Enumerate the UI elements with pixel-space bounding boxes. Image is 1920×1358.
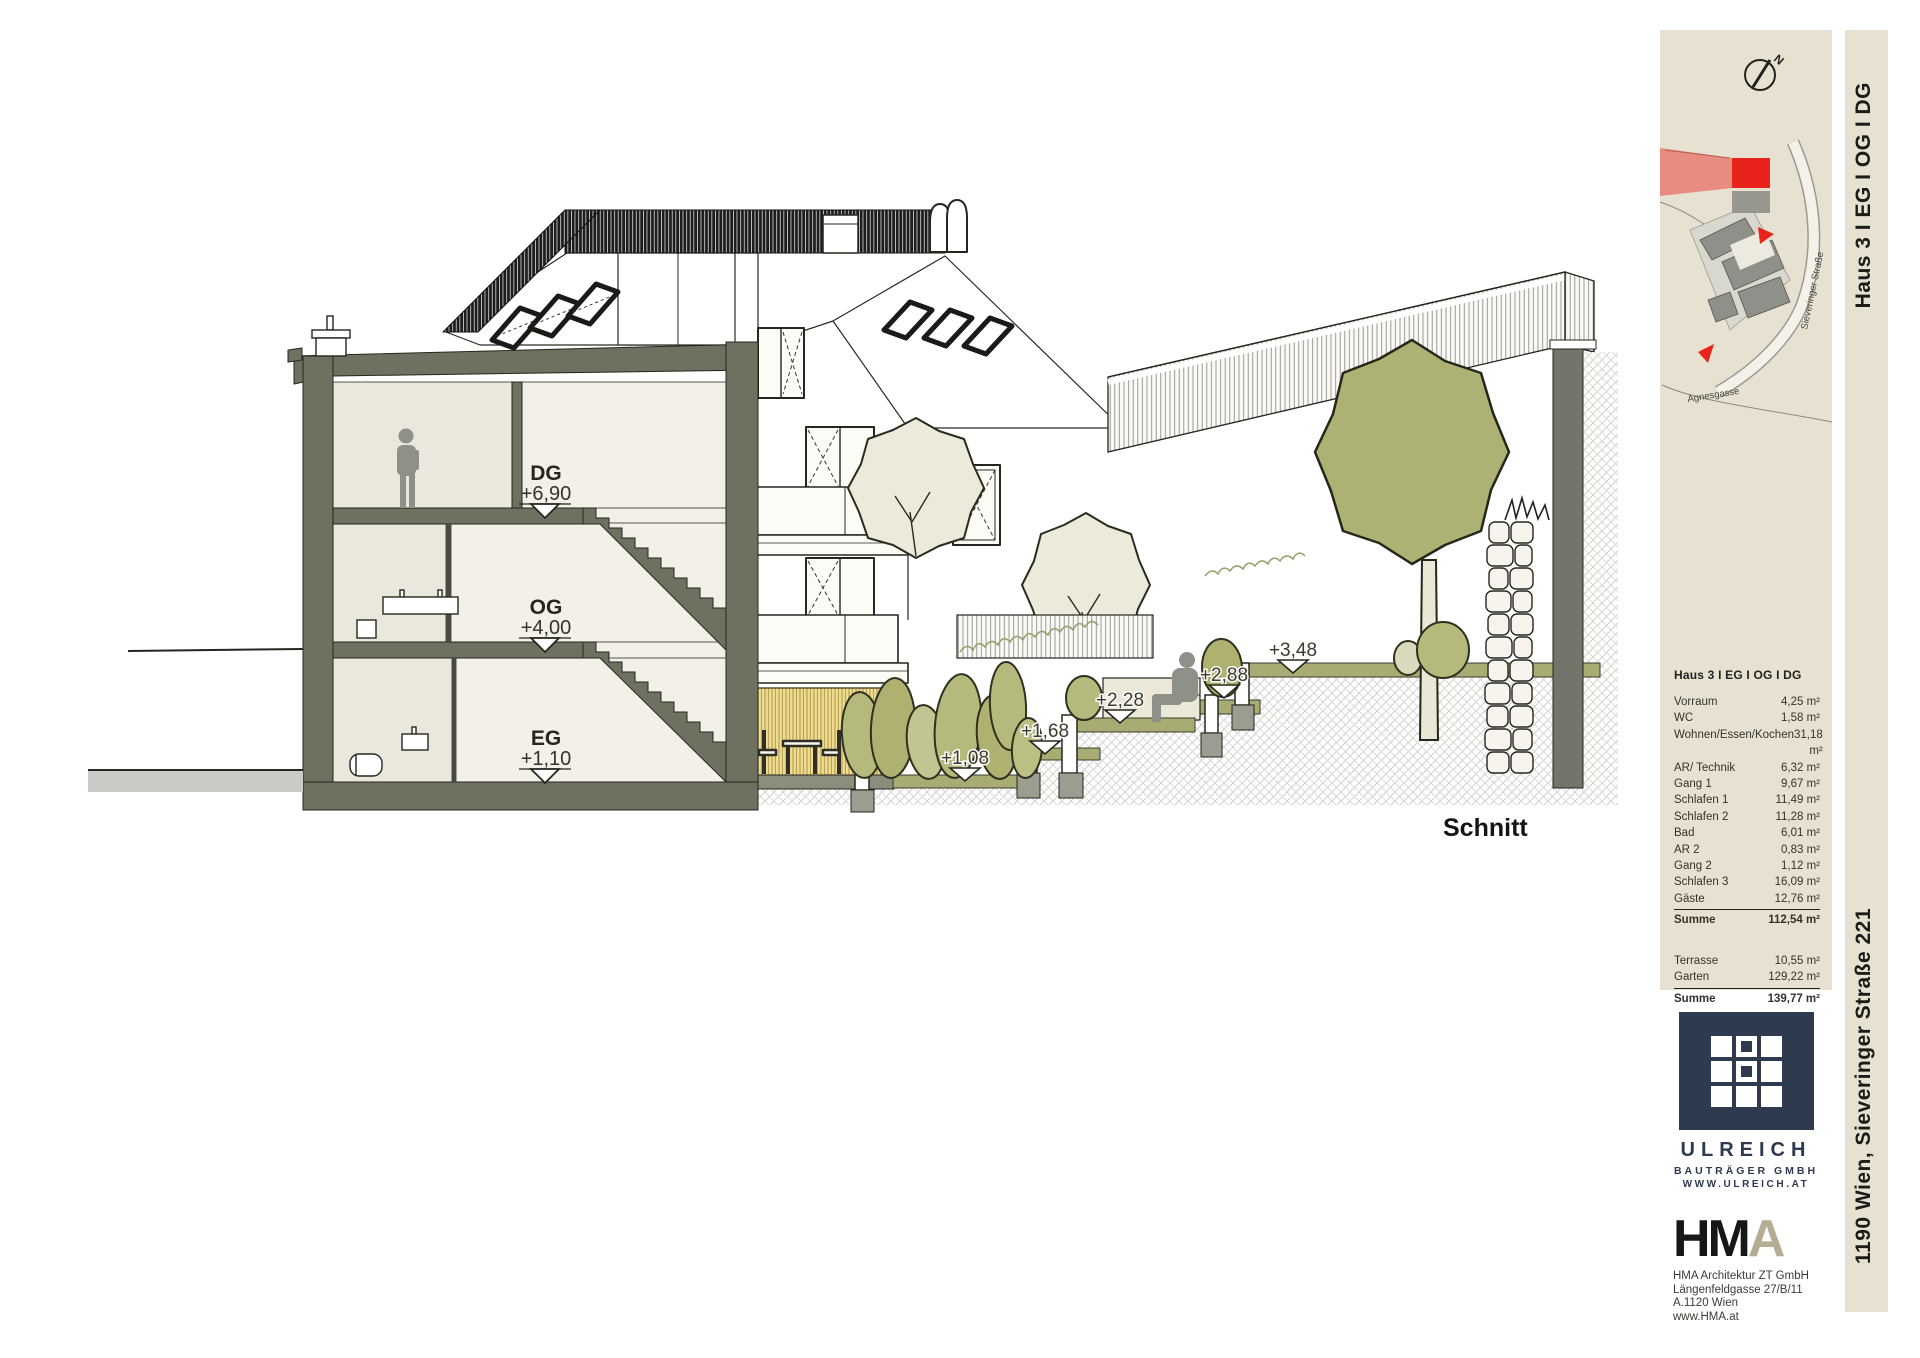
grass-tuft bbox=[1505, 498, 1549, 520]
drawing-title: Schnitt bbox=[1443, 814, 1528, 842]
table-row: Schlafen 316,09 m² bbox=[1674, 874, 1820, 890]
marker-288: +2,88 bbox=[1200, 665, 1248, 686]
north-arrow-icon: N bbox=[1745, 52, 1787, 90]
stone-wall bbox=[1485, 522, 1533, 773]
sheet: +3,48 +2,88 +2,28 +1,68 +1,08 bbox=[0, 0, 1920, 1358]
table-row: Gang 21,12 m² bbox=[1674, 858, 1820, 874]
ulreich-block: ULREICH BAUTRÄGER GMBH WWW.ULREICH.AT bbox=[1660, 1012, 1832, 1190]
table-row: Wohnen/Essen/Kochen31,18 m² bbox=[1674, 727, 1820, 760]
level-dg-name: DG bbox=[530, 462, 562, 485]
table-row: Bad6,01 m² bbox=[1674, 825, 1820, 841]
marker-168: +1,68 bbox=[1021, 721, 1069, 742]
level-dg-elev: +6,90 bbox=[521, 483, 572, 505]
sheet-title-top: Haus 3 I EG I OG I DG bbox=[1852, 82, 1876, 308]
chimney-icon bbox=[823, 215, 858, 253]
highlight-haus3 bbox=[1660, 148, 1770, 213]
table-sum-row: Summe139,77 m² bbox=[1674, 988, 1820, 1007]
roof-vent-icon bbox=[930, 200, 967, 252]
marker-108: +1,08 bbox=[941, 748, 989, 769]
section-chimney-icon bbox=[312, 316, 350, 356]
ground-line bbox=[128, 649, 303, 651]
ulreich-website: WWW.ULREICH.AT bbox=[1660, 1179, 1832, 1190]
table-row: Schlafen 111,49 m² bbox=[1674, 792, 1820, 808]
table-row: Gang 19,67 m² bbox=[1674, 776, 1820, 792]
level-eg-name: EG bbox=[531, 727, 561, 750]
building-section: DG +6,90 OG +4,00 EG +1,10 bbox=[288, 316, 758, 810]
ulreich-subtitle: BAUTRÄGER GMBH bbox=[1660, 1165, 1832, 1177]
level-og-name: OG bbox=[530, 596, 563, 619]
site-plan: N bbox=[1660, 30, 1832, 460]
window-dg bbox=[758, 328, 804, 398]
table-row: Gäste12,76 m² bbox=[1674, 891, 1820, 907]
garden-fence-low bbox=[957, 615, 1153, 658]
ulreich-logo-icon bbox=[1679, 1012, 1814, 1130]
area-table: Haus 3 I EG I OG I DG Vorraum4,25 m² WC1… bbox=[1674, 668, 1820, 1007]
window-eg bbox=[806, 558, 874, 618]
boundary-pillar bbox=[1553, 348, 1583, 788]
sheet-title-bottom: 1190 Wien, Sieveringer Straße 221 bbox=[1852, 908, 1876, 1264]
sidebar-panel: N bbox=[1660, 30, 1832, 990]
section-drawing: +3,48 +2,88 +2,28 +1,68 +1,08 bbox=[0, 0, 1650, 1358]
table-row: Garten129,22 m² bbox=[1674, 969, 1820, 985]
hma-address: HMA Architektur ZT GmbH Längenfeldgasse … bbox=[1673, 1270, 1873, 1324]
cut-marker-2 bbox=[1698, 344, 1714, 363]
tree-pale-1 bbox=[848, 418, 984, 558]
level-og-elev: +4,00 bbox=[521, 617, 572, 639]
title-strip: Haus 3 I EG I OG I DG 1190 Wien, Sieveri… bbox=[1845, 30, 1888, 1312]
hma-block: HMA HMA Architektur ZT GmbH Längenfeldga… bbox=[1673, 1214, 1873, 1324]
street-label-2: Agnesgasse bbox=[1687, 386, 1740, 405]
table-row: AR 20,83 m² bbox=[1674, 842, 1820, 858]
table-row: WC1,58 m² bbox=[1674, 710, 1820, 726]
marker-348: +3,48 bbox=[1269, 640, 1317, 661]
table-row: AR/ Technik6,32 m² bbox=[1674, 760, 1820, 776]
balcony-eg bbox=[750, 615, 908, 683]
table-row: Terrasse10,55 m² bbox=[1674, 953, 1820, 969]
area-table-header: Haus 3 I EG I OG I DG bbox=[1674, 668, 1820, 682]
marker-228: +2,28 bbox=[1096, 690, 1144, 711]
level-eg-elev: +1,10 bbox=[521, 748, 572, 770]
table-row: Schlafen 211,28 m² bbox=[1674, 809, 1820, 825]
hma-logo-icon: HMA bbox=[1673, 1214, 1873, 1264]
ulreich-name: ULREICH bbox=[1660, 1139, 1832, 1162]
table-sum-row: Summe112,54 m² bbox=[1674, 909, 1820, 928]
ground-strip bbox=[88, 770, 303, 792]
grass-squiggle-2 bbox=[1205, 553, 1305, 576]
table-row: Vorraum4,25 m² bbox=[1674, 694, 1820, 710]
north-label: N bbox=[1771, 52, 1787, 68]
